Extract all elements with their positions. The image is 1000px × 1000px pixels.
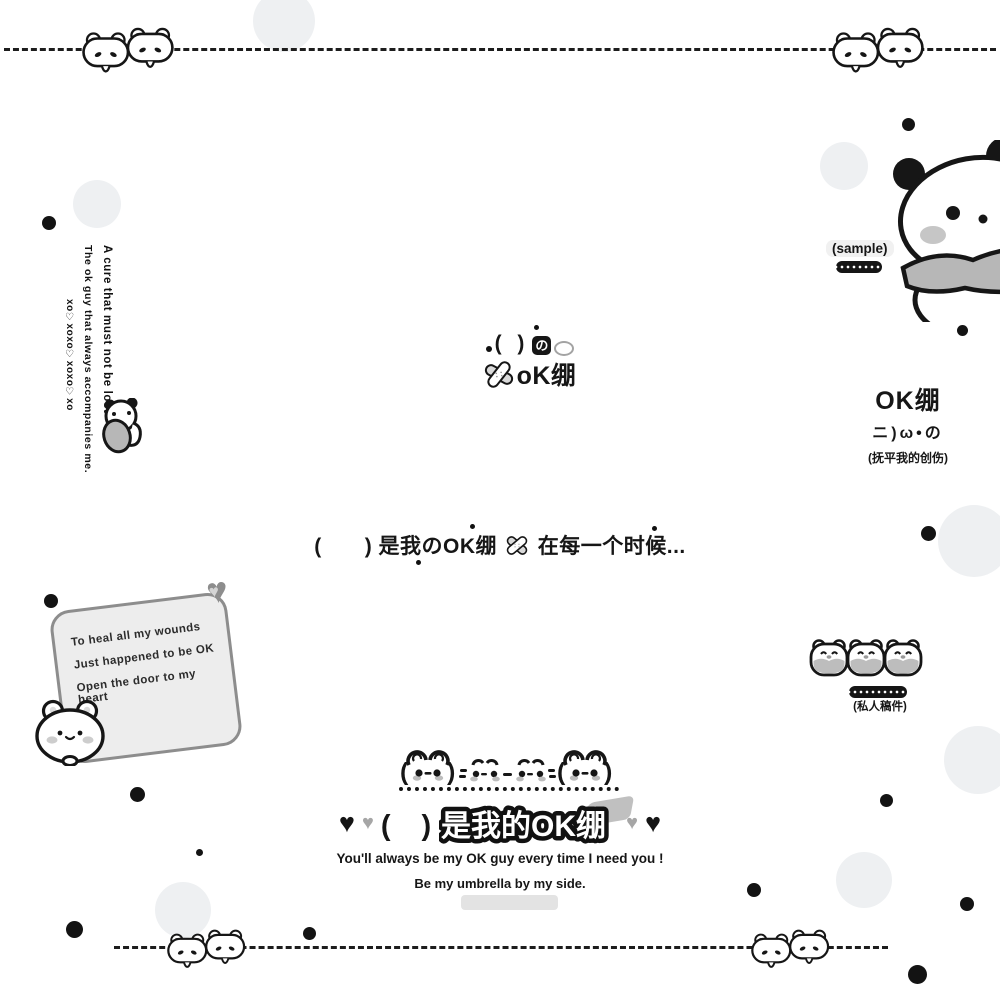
- middle-sentence-part1: ( ) 是我のOK绷: [314, 535, 497, 558]
- gray-circle: [73, 180, 121, 228]
- bear-pair-icon: [167, 929, 248, 970]
- gray-circle: [253, 0, 315, 52]
- soothe-caption: (抚平我的创伤): [843, 449, 973, 466]
- no-badge: の: [532, 336, 551, 355]
- right-ok-block: OK绷 ニ)ω•の (抚平我的创伤): [843, 381, 973, 466]
- heart-icon: ♥: [339, 810, 355, 837]
- sample-tag: (sample): [826, 240, 894, 257]
- center-logo-top: ( ) の: [450, 332, 610, 356]
- bubble-title-fill: 是我的OK绷: [441, 810, 606, 843]
- ok-bandage-title: OK绷: [843, 381, 973, 417]
- ok-bandage-label: oK绷: [517, 356, 577, 392]
- sticker-sheet-canvas: { "icons": { "heart": "♥" }, "left_verti…: [0, 0, 1000, 1000]
- bear-trio-icon: [812, 638, 923, 678]
- main-title-row: ♥ ♥ ( ) 是我的OK绷 是我的OK绷 ♥ ♥: [0, 799, 1000, 847]
- oval-icon: [554, 341, 574, 356]
- center-logo-bottom: oK绷: [450, 356, 610, 392]
- accent-dot: [486, 346, 492, 352]
- kaomoji-bears-icon: [400, 746, 612, 786]
- dotted-bar-icon: [836, 261, 882, 273]
- accent-dot: [652, 526, 657, 531]
- dotted-divider: [399, 787, 619, 791]
- black-dot: [42, 216, 56, 230]
- private-draft-caption: (私人稿件): [810, 698, 950, 714]
- blank-gray-pill: [461, 895, 558, 910]
- bubble-title: 是我的OK绷 是我的OK绷: [439, 799, 619, 847]
- title-paren-blank: ( ): [381, 802, 432, 844]
- middle-sentence: ( ) 是我のOK绷 在每一个时候...: [0, 530, 1000, 560]
- kaomoji-glyph-row: ニ)ω•の: [843, 419, 973, 443]
- gray-circle: [820, 142, 868, 190]
- dotted-bar-icon: [849, 686, 907, 698]
- black-dot: [66, 921, 83, 938]
- heart-icon: ♥: [645, 810, 661, 837]
- accent-dot: [534, 325, 539, 330]
- subtitle-line-2: Be my umbrella by my side.: [0, 876, 1000, 891]
- middle-sentence-part2: 在每一个时候...: [538, 535, 686, 558]
- gray-circle: [944, 726, 1000, 794]
- bandaid-icon: [505, 535, 529, 556]
- center-logo: ( ) の oK绷: [450, 332, 610, 392]
- mini-panda-icon: [99, 398, 149, 456]
- bandaid-icon: [481, 358, 516, 391]
- black-dot: [957, 325, 968, 336]
- bear-pair-icon: [832, 27, 927, 75]
- black-dot: [303, 927, 316, 940]
- accent-dot: [470, 524, 475, 529]
- bear-pair-icon: [82, 27, 177, 75]
- black-dot: [44, 594, 58, 608]
- heart-icon: ♥: [208, 583, 220, 601]
- accent-dot: [416, 560, 421, 565]
- paren-blank: ( ): [495, 332, 530, 356]
- black-dot: [908, 965, 927, 984]
- note-bear-icon: [34, 698, 108, 766]
- big-panda-icon: [893, 140, 1000, 322]
- black-dot: [902, 118, 915, 131]
- black-dot: [960, 897, 974, 911]
- heart-icon: ♥: [362, 813, 374, 833]
- note-card-text: To heal all my wounds Just happened to b…: [52, 594, 234, 708]
- subtitle-line-1: You'll always be my OK guy every time I …: [0, 851, 1000, 866]
- bear-pair-icon: [751, 929, 832, 970]
